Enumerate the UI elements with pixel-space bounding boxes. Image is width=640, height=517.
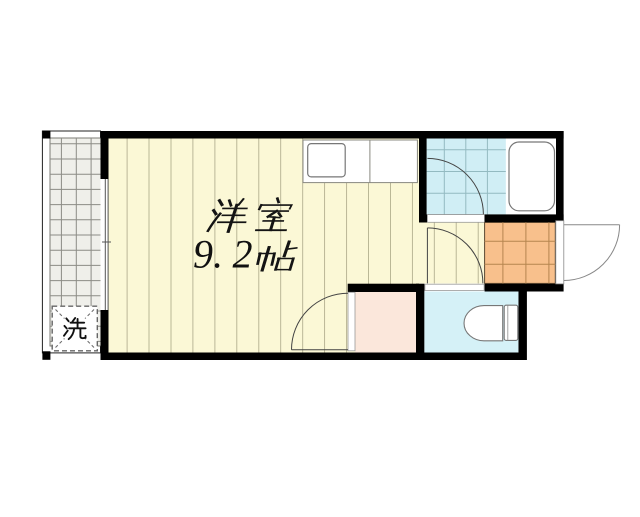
svg-text:9.: 9. [193, 232, 223, 277]
svg-text:2: 2 [233, 232, 253, 277]
